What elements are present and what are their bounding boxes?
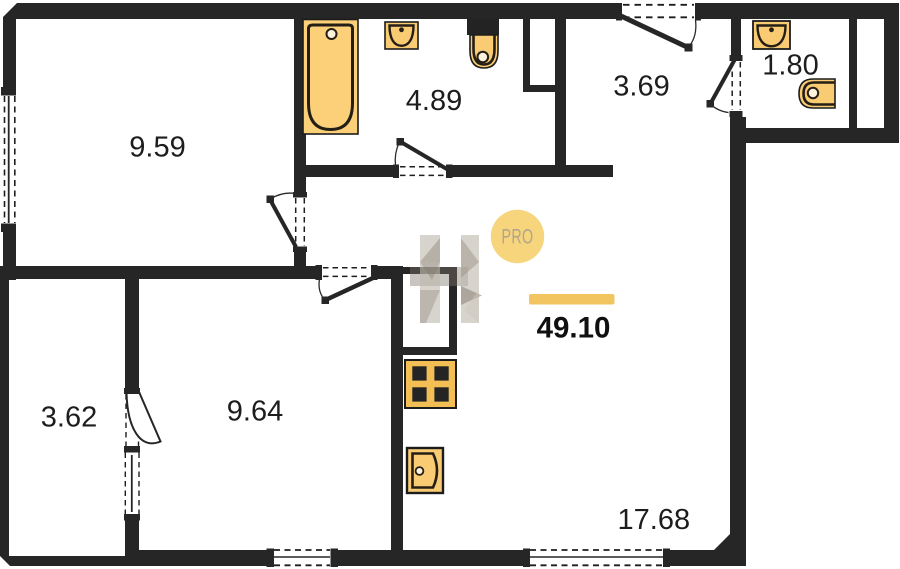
svg-text:PRO: PRO xyxy=(502,225,534,248)
svg-text:17.68: 17.68 xyxy=(618,504,691,536)
svg-text:3.69: 3.69 xyxy=(613,70,669,102)
svg-text:4.89: 4.89 xyxy=(406,85,462,117)
svg-text:9.64: 9.64 xyxy=(227,395,283,427)
svg-text:1.80: 1.80 xyxy=(762,50,818,82)
svg-text:3.62: 3.62 xyxy=(41,401,97,433)
svg-text:49.10: 49.10 xyxy=(537,312,611,345)
svg-text:9.59: 9.59 xyxy=(129,132,185,164)
